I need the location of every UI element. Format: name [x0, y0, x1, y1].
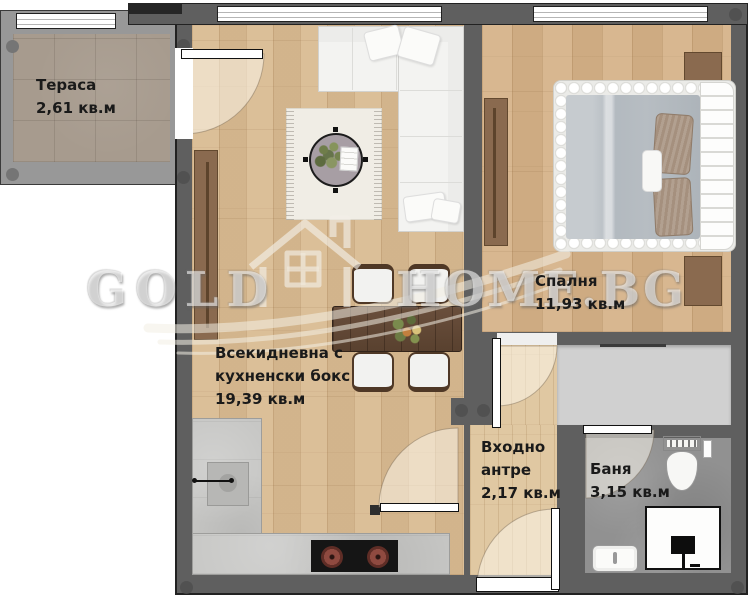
living-hall-door-leaf [380, 503, 459, 512]
terrace-door-leaf [181, 49, 263, 59]
sofa-seam [400, 90, 462, 91]
rug-fringe-left [286, 108, 294, 220]
living-room-name-line2: кухненски бокс [215, 365, 350, 388]
bedroom-door-threshold [497, 333, 557, 345]
burner [367, 546, 389, 568]
table-tick [363, 157, 368, 162]
table-tick [333, 127, 338, 132]
faucet [194, 480, 232, 482]
entrance-door-threshold [476, 577, 559, 592]
bathroom-area: 3,15 кв.м [590, 481, 670, 504]
watermark-text-left: GOLD [86, 262, 276, 318]
wardrobe-line [493, 108, 496, 238]
bed-edge-top [555, 82, 700, 95]
entry-hall-name-line2: антре [481, 459, 561, 482]
sofa-seam [400, 182, 462, 183]
terrace-name: Тераса [36, 74, 116, 97]
entry-hall-name-line1: Входно [481, 436, 561, 459]
bedroom-name: Спалня [535, 270, 625, 293]
terrace-door-opening [175, 48, 193, 139]
bolt [180, 581, 193, 594]
living-room-label: Всекидневна с кухненски бокс 19,39 кв.м [215, 342, 350, 411]
bolt [177, 171, 190, 184]
living-room-window [217, 6, 442, 22]
living-room-name-line1: Всекидневна с [215, 342, 350, 365]
bathroom-name: Баня [590, 458, 670, 481]
bedroom-area: 11,93 кв.м [535, 293, 625, 316]
sofa-pillow [430, 198, 461, 225]
entry-hall-area: 2,17 кв.м [481, 482, 561, 505]
toilet-tank [663, 436, 701, 451]
bolt [455, 404, 468, 417]
terrace-label: Тераса 2,61 кв.м [36, 74, 116, 120]
bolt [6, 40, 19, 53]
dining-chair [408, 352, 450, 392]
floor-plan: GOLD HOME.BG Тераса 2,61 кв.м Всекидневн… [0, 0, 748, 604]
entry-hall-label: Входно антре 2,17 кв.м [481, 436, 561, 505]
bolt [731, 581, 744, 594]
top-wall-dark-segment [128, 3, 182, 14]
rug-fringe-right [374, 108, 382, 220]
shower-head [671, 536, 695, 554]
bedroom-label: Спалня 11,93 кв.м [535, 270, 625, 316]
wall-stub [370, 505, 380, 515]
sofa-seam [400, 136, 462, 137]
terrace-area: 2,61 кв.м [36, 97, 116, 120]
dining-chair [352, 264, 394, 304]
bed-headboard [700, 82, 734, 250]
notepad [339, 147, 358, 172]
flush-panel [703, 440, 712, 458]
wardrobe-niche [557, 345, 731, 425]
faucet-knob [229, 478, 234, 483]
bedside-desk [684, 256, 722, 306]
bathroom-door-leaf [583, 425, 652, 434]
burner [321, 546, 343, 568]
bolt [6, 168, 19, 181]
terrace-railing-window [16, 13, 116, 29]
bathroom-label: Баня 3,15 кв.м [590, 458, 670, 504]
entrance-door-leaf [551, 508, 560, 590]
table-tick [333, 188, 338, 193]
sink-basin [219, 474, 237, 492]
bolt [477, 404, 490, 417]
bolt [729, 8, 742, 21]
faucet-knob [192, 478, 197, 483]
shower-pipe [682, 554, 685, 569]
corridor-floor [497, 345, 557, 425]
sink-tap [613, 552, 617, 564]
bed-small-pillow [642, 150, 662, 192]
shower-foot [690, 564, 700, 567]
bedroom-window [533, 6, 708, 22]
bedroom-door-leaf [492, 338, 501, 428]
table-tick [303, 157, 308, 162]
living-room-area: 19,39 кв.м [215, 388, 350, 411]
dining-chair [352, 352, 394, 392]
bedroom-wardrobe [484, 98, 508, 246]
sofa-seam [352, 28, 353, 90]
niche-edge-line [600, 344, 666, 347]
